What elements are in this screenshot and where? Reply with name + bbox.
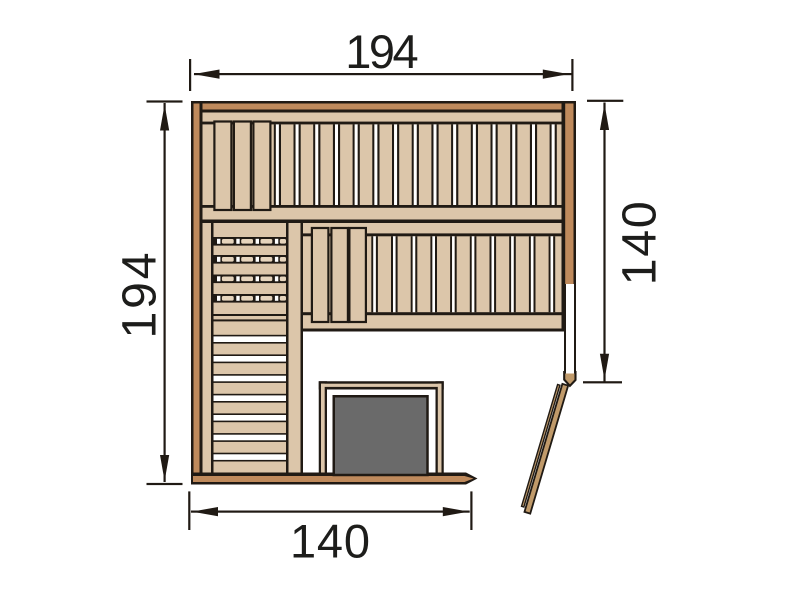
svg-text:194: 194	[345, 25, 417, 78]
svg-text:194: 194	[113, 250, 167, 339]
svg-text:140: 140	[613, 200, 667, 286]
svg-text:140: 140	[290, 515, 371, 568]
